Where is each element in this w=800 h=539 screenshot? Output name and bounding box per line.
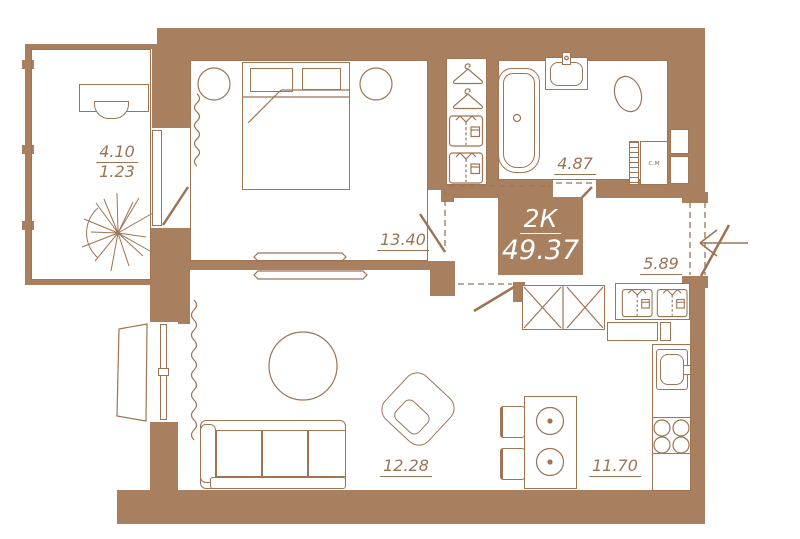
wardrobe-sliding [522,285,605,330]
balcony-door-leaf [163,187,188,225]
window-casement-icon [117,324,147,421]
entrance-door-leaf [701,225,729,276]
wall-hall-living-block [430,270,455,296]
bathroom-sink-basin [550,62,583,86]
hallway-area-label: 5.89 [640,255,682,275]
dining-table [524,396,577,489]
wall-entry-jamb-top [682,192,708,203]
hall-closet [615,283,690,320]
sofa-armrest [200,424,216,483]
wall-closet-right [487,58,498,185]
wall-left-middle [150,228,190,324]
balcony-area-full: 4.10 [96,143,138,163]
wall-closet-bottom [441,185,498,198]
hall-door-leaf [474,287,514,311]
vent-shaft-upper [670,129,689,154]
tv-living-icon [254,271,367,279]
bathtub-basin [503,73,535,168]
curtain-icon [192,300,197,440]
kitchen-faucet [683,365,691,375]
sofa-cushion [262,430,308,477]
stove [652,417,691,454]
hall-drawer-small [660,322,671,341]
wall-left-upper [152,46,190,128]
wall-left-lower [150,420,178,492]
sofa-cushion [216,430,262,477]
bathroom-area-label: 4.87 [554,155,596,175]
entrance-arrow-icon [700,230,748,256]
sofa-front-skirt [210,477,346,489]
bed-pillow [302,68,341,90]
living-area-label: 12.28 [380,457,432,477]
wall-bottom [117,490,705,524]
bathroom-faucet [562,52,571,65]
round-rug-icon [269,332,337,400]
wall-bedroom-bottom [190,261,455,270]
towel-radiator [629,141,639,185]
vent-shaft-lower [670,156,689,184]
bed-pillow [250,68,293,92]
wall-right-lower [690,280,705,492]
wall-top [157,28,705,60]
wall-bedroom-closet [428,60,446,190]
kitchen-sink-basin [660,354,684,385]
kitchen-area-label: 11.70 [589,457,641,477]
dining-chair [500,406,525,438]
wall-bath-bottom-left [498,180,553,198]
balcony-area-reduced: 1.23 [99,162,135,181]
dining-chair [500,448,525,480]
sofa-cushion [308,430,346,477]
closet-outline [446,58,487,185]
washing-machine-label: с.м [640,141,668,185]
balcony-area-label: 4.10 1.23 [96,143,138,182]
window-mullion [158,368,169,376]
bedroom-area-label: 13.40 [377,231,429,251]
apartment-info-box: 2К 49.37 [498,197,583,275]
floor-plan-canvas: с.м [0,0,800,539]
apartment-type-label: 2К [520,206,562,234]
hall-drawer [607,322,658,341]
armchair-cushion [391,397,432,438]
balcony-wall-bottom [25,280,152,285]
armchair [376,367,461,452]
balcony-door-frame [152,130,162,226]
apartment-total-area: 49.37 [502,237,579,265]
